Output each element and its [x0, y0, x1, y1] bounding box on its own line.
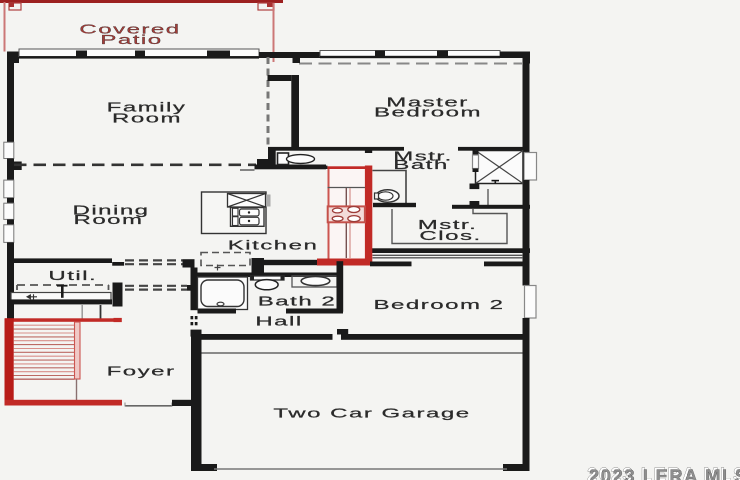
- svg-text:Bedroom: Bedroom: [374, 106, 482, 120]
- svg-text:Room: Room: [73, 213, 143, 227]
- svg-text:Foyer: Foyer: [107, 365, 176, 379]
- svg-text:2023 LERA MLS: 2023 LERA MLS: [589, 466, 740, 480]
- svg-text:Util.: Util.: [48, 269, 97, 283]
- svg-text:Hall: Hall: [255, 315, 302, 329]
- svg-text:Room: Room: [112, 112, 182, 126]
- svg-text:Bedroom 2: Bedroom 2: [374, 298, 505, 312]
- svg-text:Kitchen: Kitchen: [228, 239, 319, 253]
- svg-text:Bath 2: Bath 2: [258, 295, 336, 309]
- svg-text:Two Car Garage: Two Car Garage: [273, 407, 470, 421]
- svg-text:Patio: Patio: [100, 33, 162, 47]
- svg-text:Clos.: Clos.: [419, 229, 481, 243]
